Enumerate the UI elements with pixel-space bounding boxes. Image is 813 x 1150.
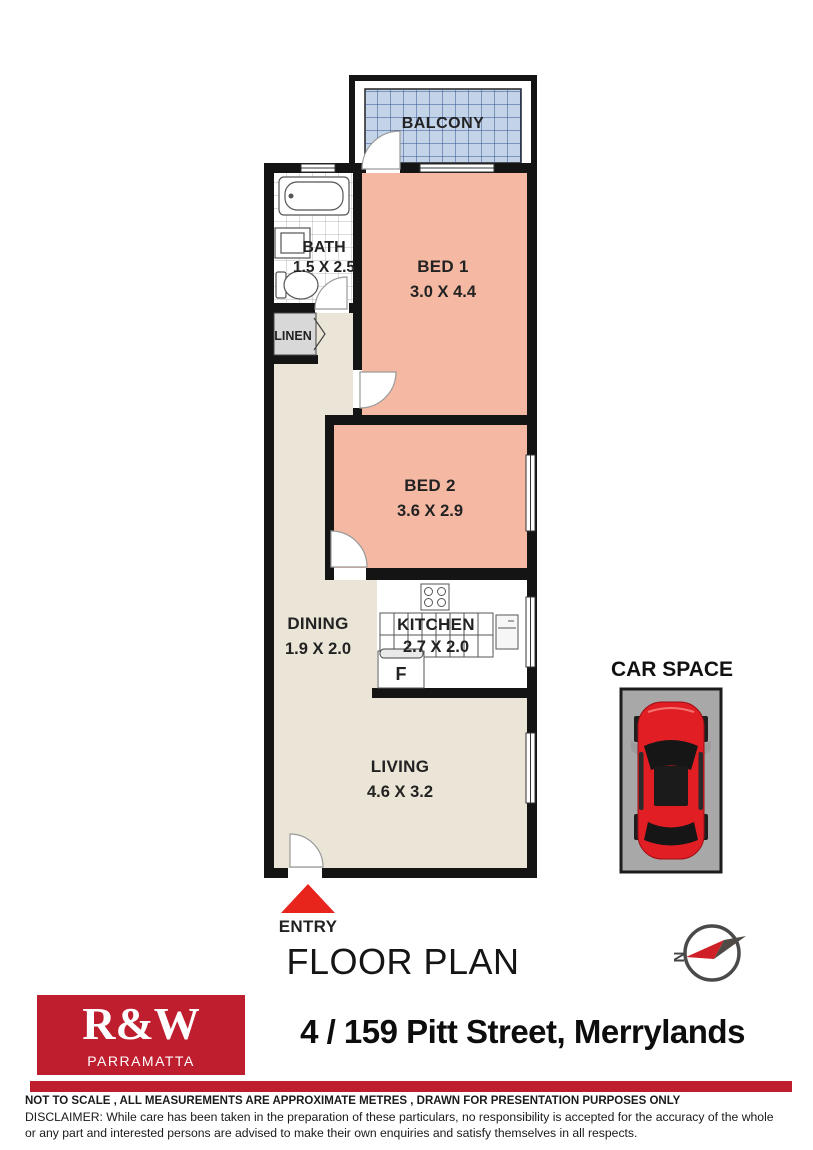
dining-dims: 1.9 X 2.0 [285, 640, 351, 658]
living-window [526, 733, 535, 803]
wall-left [264, 163, 274, 878]
bath-label: BATH [302, 239, 345, 256]
bed1-dims: 3.0 X 4.4 [410, 283, 477, 301]
balcony-label: BALCONY [402, 115, 485, 132]
bed2-dims: 3.6 X 2.9 [397, 502, 463, 520]
entry-label: ENTRY [279, 917, 338, 936]
car-icon [631, 702, 711, 859]
stove-cooktop [421, 584, 449, 610]
floorplan-page: BALCONY [0, 0, 813, 1150]
entry-arrow-icon [281, 884, 335, 913]
living-label: LIVING [371, 757, 429, 776]
wall-linen-bottom [264, 355, 318, 364]
bed1-label: BED 1 [417, 257, 469, 276]
bath-window [301, 164, 335, 172]
kitchen-appliance [496, 615, 518, 649]
disclaimer-text: DISCLAIMER: While care has been taken in… [25, 1110, 783, 1142]
bed2-label: BED 2 [404, 476, 456, 495]
kitchen-label: KITCHEN [397, 615, 475, 634]
car-space-label: CAR SPACE [611, 658, 733, 681]
logo-office-text: PARRAMATTA [87, 1053, 195, 1069]
bath-dims: 1.5 X 2.5 [293, 259, 355, 276]
compass: N [670, 926, 746, 980]
bed1-window [420, 164, 494, 172]
kitchen-window [526, 597, 535, 667]
entry-marker: ENTRY [279, 884, 338, 936]
scale-note: NOT TO SCALE , ALL MEASUREMENTS ARE APPR… [25, 1095, 795, 1107]
opening-entry-door [288, 868, 322, 878]
floor-plan-title: FLOOR PLAN [263, 941, 543, 983]
bed2-window [526, 455, 535, 531]
bed2-floor [334, 425, 527, 568]
agency-logo: R&W PARRAMATTA [37, 995, 245, 1075]
fridge-label: F [396, 664, 407, 684]
opening-bed2-door [334, 568, 366, 580]
footer-divider [30, 1081, 792, 1092]
wall-kitchen-bottom [372, 688, 537, 698]
kitchen-dims: 2.7 X 2.0 [403, 638, 469, 656]
linen-label: LINEN [274, 329, 312, 343]
living-dims: 4.6 X 3.2 [367, 783, 433, 801]
bathtub [279, 177, 349, 215]
logo-brand-text: R&W [82, 1001, 200, 1047]
compass-north-label: N [670, 952, 687, 963]
car-space: CAR SPACE [611, 658, 733, 872]
wall-bed2-top [325, 415, 537, 425]
dining-label: DINING [287, 614, 348, 633]
property-address: 4 / 159 Pitt Street, Merrylands [250, 1013, 795, 1051]
